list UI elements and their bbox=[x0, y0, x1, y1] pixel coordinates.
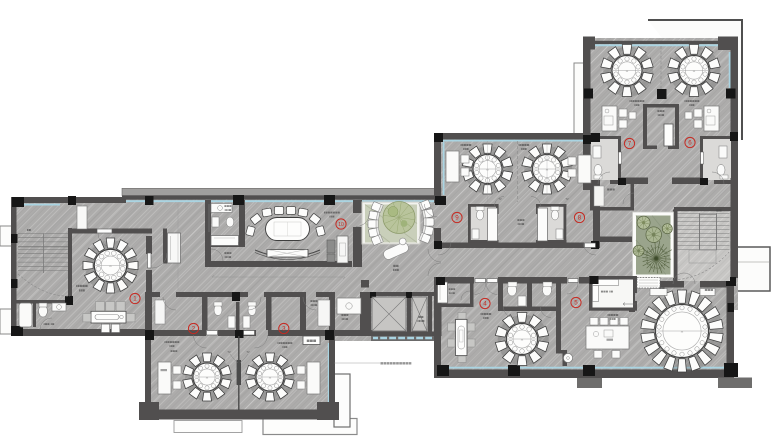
svg-text:7: 7 bbox=[628, 141, 632, 148]
svg-text:5: 5 bbox=[574, 300, 578, 307]
svg-text:9: 9 bbox=[455, 215, 459, 222]
svg-text:6: 6 bbox=[688, 140, 692, 147]
svg-text:8: 8 bbox=[578, 215, 582, 222]
svg-text:TV: TV bbox=[565, 197, 569, 201]
svg-text:3: 3 bbox=[282, 326, 286, 333]
svg-text:1: 1 bbox=[133, 296, 137, 303]
svg-text:TV: TV bbox=[498, 197, 502, 201]
svg-text:2: 2 bbox=[192, 326, 196, 333]
svg-text:TV: TV bbox=[227, 350, 231, 354]
svg-text:4: 4 bbox=[483, 301, 487, 308]
svg-text:TV: TV bbox=[246, 350, 250, 354]
svg-text:10: 10 bbox=[338, 222, 344, 228]
